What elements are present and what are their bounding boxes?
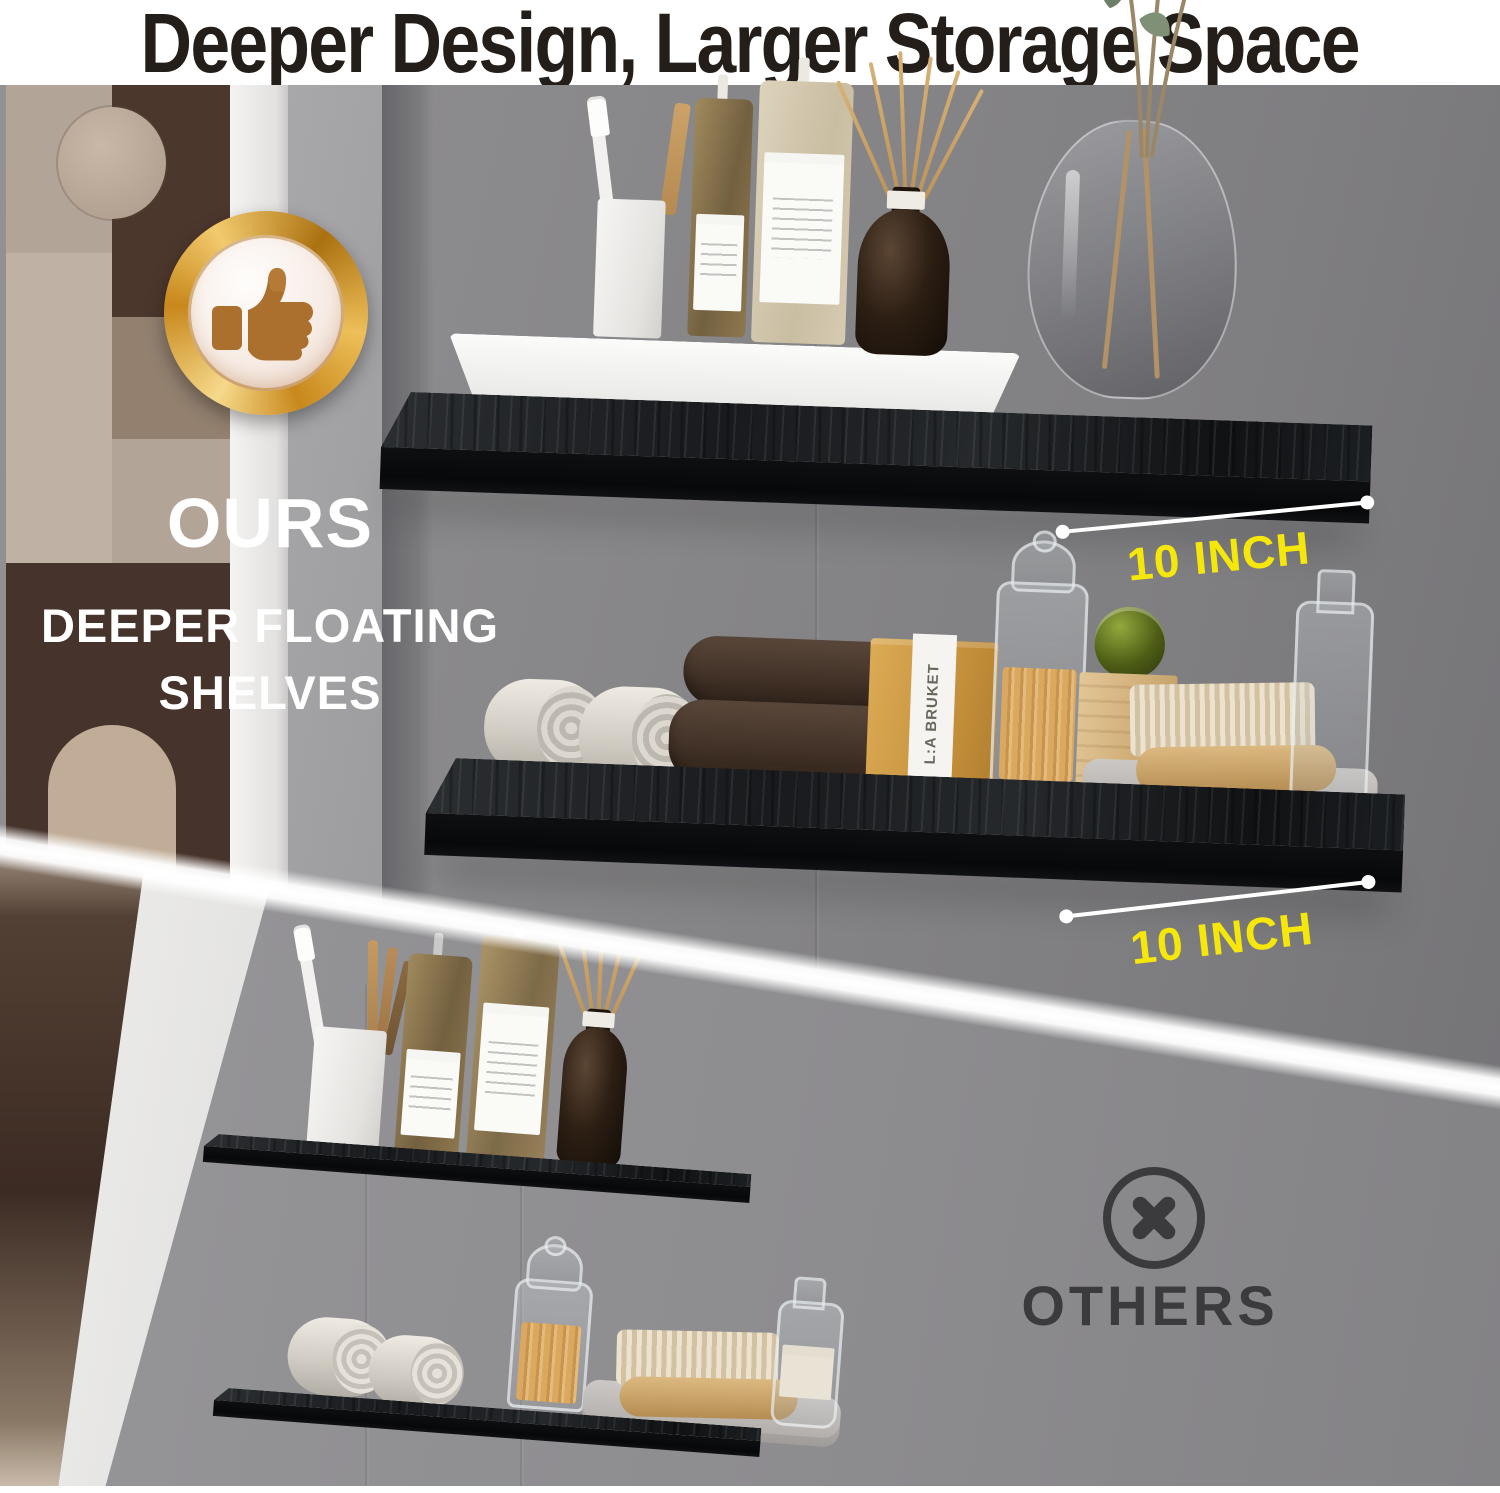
amber-pump-bottle — [394, 953, 473, 1157]
soap-box: L:A BRUKET — [865, 638, 999, 791]
green-glass-jar — [1094, 606, 1167, 681]
circle-x-icon — [1103, 1167, 1205, 1269]
label-text-lines — [700, 243, 738, 283]
soap-box-label: L:A BRUKET — [907, 634, 957, 794]
reed-diffuser-bottle — [556, 1025, 630, 1169]
diffuser-label — [887, 190, 926, 209]
diffuser-label — [582, 1011, 615, 1028]
pump-bottle-stem — [798, 57, 810, 83]
olive-branch-icon — [977, 0, 1319, 163]
bottle-label — [779, 1344, 835, 1400]
small-glass-bottle — [770, 1299, 845, 1430]
jar-contents — [516, 1322, 582, 1404]
vase-branch — [1102, 130, 1132, 369]
approval-badge — [164, 211, 368, 415]
wooden-comb — [660, 102, 691, 215]
vase-highlight — [1061, 169, 1080, 321]
art-shape-circle — [58, 107, 166, 219]
amber-pump-bottle — [687, 98, 753, 338]
toothbrush-cup — [306, 1026, 387, 1153]
diffuser-reed — [916, 89, 984, 213]
frosted-soap-bottle — [751, 80, 854, 345]
cotton-swab-jar — [506, 1277, 594, 1412]
jar-contents — [999, 667, 1077, 782]
label-text-lines — [485, 1041, 539, 1096]
bottle-label — [693, 214, 744, 312]
toothbrush-head — [293, 924, 316, 962]
bottle-label — [474, 1003, 549, 1136]
bottle-label — [400, 1049, 460, 1139]
reed-diffuser-bottle — [855, 208, 952, 357]
toothbrush-cup — [593, 198, 666, 338]
thumbs-up-icon — [206, 258, 326, 368]
others-heading: OTHERS — [940, 1273, 1360, 1338]
amber-soap-bottle — [466, 934, 561, 1165]
clear-glass-bottle — [1289, 600, 1375, 805]
footer-band — [0, 1486, 1500, 1493]
bottle-label — [759, 152, 844, 305]
apothecary-jar — [989, 581, 1089, 790]
vase-branch — [1142, 129, 1160, 379]
label-text-lines — [770, 197, 833, 259]
product-infographic: Deeper Design, Larger Storage Space OU — [0, 0, 1500, 1493]
toothbrush-head — [586, 95, 610, 137]
ours-heading: OURS — [40, 483, 500, 563]
label-text-lines — [409, 1075, 453, 1112]
